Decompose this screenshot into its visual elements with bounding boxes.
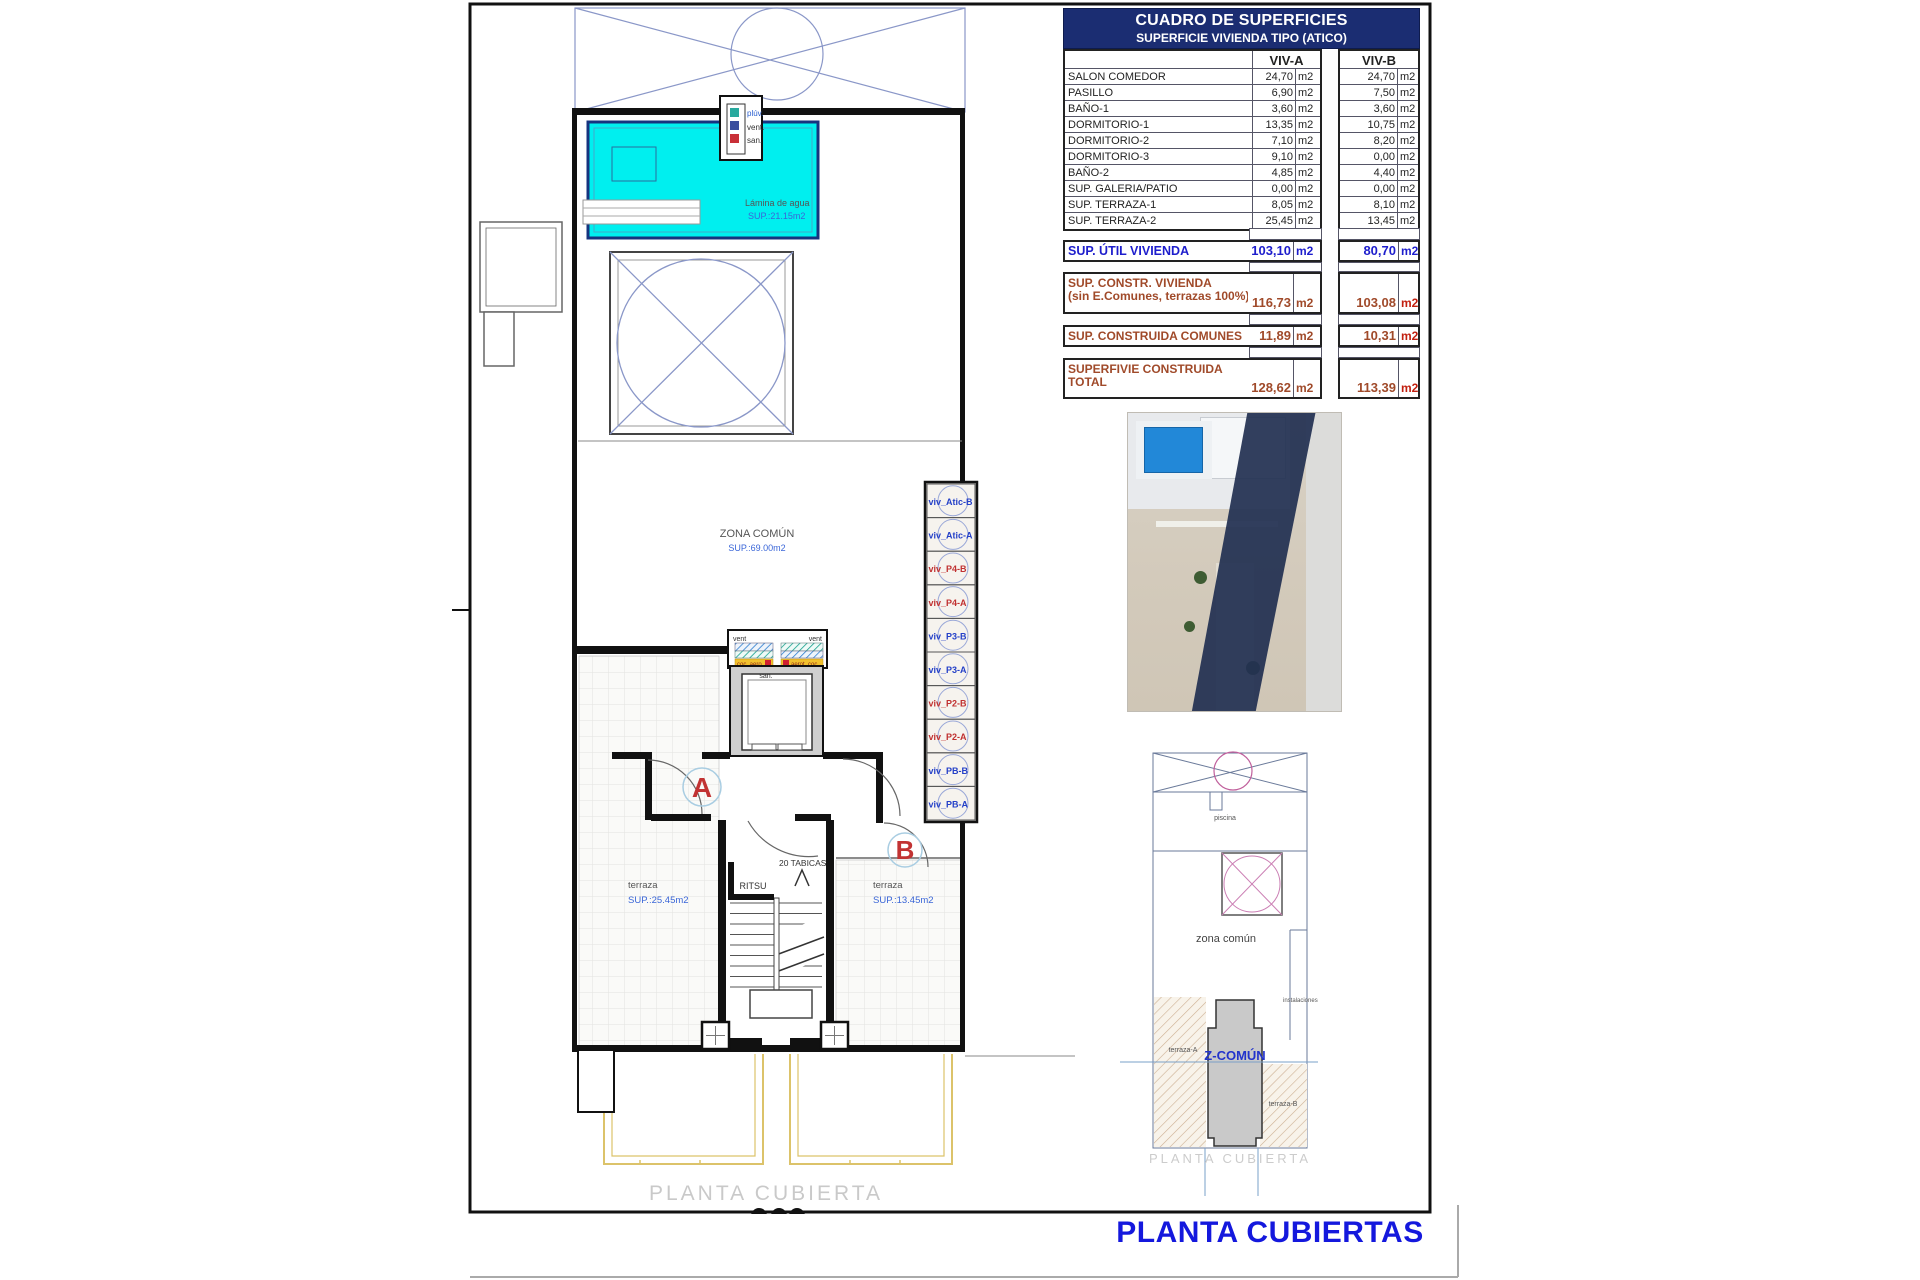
table-row: DORMITORIO-27,10m2: [1065, 133, 1320, 149]
aerial-render-image: [1127, 412, 1342, 712]
table-row-b: 8,20m2: [1340, 133, 1418, 149]
elevator: [730, 666, 823, 756]
table-spacer: [1338, 228, 1420, 240]
riser-label: viv_P4-A: [929, 598, 968, 608]
roof-skylight: [575, 8, 965, 112]
table-spacer: [1249, 347, 1322, 358]
table-row-b: 24,70m2: [1340, 69, 1418, 85]
total-construida-row: SUPERFIVIE CONSTRUIDA TOTAL 128,62 m2: [1063, 358, 1322, 399]
total-comunes-row-b: 10,31 m2: [1338, 325, 1420, 347]
exterior-planters: [480, 222, 562, 366]
col-header-viv-a: VIV-A: [1253, 51, 1320, 69]
columns: [702, 1022, 848, 1049]
table-row-b: 0,00m2: [1340, 149, 1418, 165]
legend-vent: vent.: [747, 123, 764, 132]
pool-area-value: SUP.:21.15m2: [748, 211, 805, 221]
lightwell: [610, 252, 793, 434]
san-label: san.: [759, 673, 772, 680]
riser-label: viv_P2-B: [929, 699, 968, 709]
table-row-b: 7,50m2: [1340, 85, 1418, 101]
svg-text:SUP.:13.45m2: SUP.:13.45m2: [873, 895, 934, 906]
riser-label: viv_PB-A: [929, 799, 969, 809]
exterior-box: [578, 1050, 614, 1112]
riser-shaft-cells: viv_Atic-Bviv_Atic-Aviv_P4-Bviv_P4-Aviv_…: [927, 484, 975, 820]
table-row-b: 3,60m2: [1340, 101, 1418, 117]
table-row-b: 13,45m2: [1340, 213, 1418, 229]
tabicas-label: 20 TABICAS: [779, 858, 827, 868]
table-header: CUADRO DE SUPERFICIES SUPERFICIE VIVIEND…: [1063, 8, 1420, 49]
zona-comun-label: ZONA COMÚN SUP.:69.00m2: [720, 527, 795, 553]
table-spacer: [1338, 314, 1420, 325]
pool-riser-legend: plúv. vent. san.: [720, 96, 764, 160]
table-row: PASILLO6,90m2: [1065, 85, 1320, 101]
table-row: SUP. TERRAZA-225,45m2: [1065, 213, 1320, 229]
table-row-b: 10,75m2: [1340, 117, 1418, 133]
riser-label: viv_P3-B: [929, 631, 968, 641]
site-zona-comun-label: zona común: [1196, 933, 1256, 945]
awning-outlines: [604, 1054, 952, 1165]
svg-text:ZONA COMÚN: ZONA COMÚN: [720, 527, 795, 540]
render-plant: [1194, 571, 1207, 584]
svg-text:terraza: terraza: [873, 880, 903, 891]
table-row: BAÑO-24,85m2: [1065, 165, 1320, 181]
total-util-row: SUP. ÚTIL VIVIENDA 103,10 m2: [1063, 240, 1322, 262]
table-row-b: 0,00m2: [1340, 181, 1418, 197]
total-comunes-row: SUP. CONSTRUIDA COMUNES 11,89 m2: [1063, 325, 1322, 347]
table-viv-b-box: VIV-B 24,70m27,50m23,60m210,75m28,20m20,…: [1338, 49, 1420, 231]
vent-legend-strip: vent vent coc. aero aerot. coc.: [728, 630, 827, 668]
svg-text:A: A: [692, 772, 712, 803]
table-spacer: [1338, 262, 1420, 272]
riser-label: viv_P4-B: [929, 564, 968, 574]
riser-label: viv_P2-A: [929, 732, 968, 742]
san-icon: [730, 134, 739, 143]
table-row: SALON COMEDOR24,70m2: [1065, 69, 1320, 85]
svg-text:B: B: [896, 835, 915, 865]
surface-table: CUADRO DE SUPERFICIES SUPERFICIE VIVIEND…: [1063, 8, 1420, 404]
site-pool-circle: [1214, 752, 1252, 790]
table-viv-a-box: VIV-A SALON COMEDOR24,70m2PASILLO6,90m2B…: [1063, 49, 1322, 231]
table-row: BAÑO-13,60m2: [1065, 101, 1320, 117]
riser-label: viv_Atic-A: [929, 531, 974, 541]
table-title: CUADRO DE SUPERFICIES: [1064, 9, 1419, 30]
pool-steps: [583, 200, 700, 224]
site-core-shaft: [1208, 1000, 1262, 1146]
svg-text:SUP.:25.45m2: SUP.:25.45m2: [628, 895, 689, 906]
sheet-title: PLANTA CUBIERTAS: [1100, 1216, 1440, 1250]
table-spacer: [1338, 347, 1420, 358]
pool: Lámina de agua SUP.:21.15m2: [583, 122, 818, 238]
plan-caption: PLANTA CUBIERTA: [649, 1182, 883, 1205]
table-row: SUP. TERRAZA-18,05m2: [1065, 197, 1320, 213]
riser-label: viv_PB-B: [929, 766, 969, 776]
table-col-header-row-b: VIV-B: [1340, 51, 1418, 69]
total-constr-row: SUP. CONSTR. VIVIENDA (sin E.Comunes, te…: [1063, 272, 1322, 314]
legend-san: san.: [747, 136, 762, 145]
table-row: SUP. GALERIA/PATIO0,00m2: [1065, 181, 1320, 197]
total-constr-row-b: 103,08 m2: [1338, 272, 1420, 314]
table-spacer: [1249, 262, 1322, 272]
table-row-b: 8,10m2: [1340, 197, 1418, 213]
ritsu-label: RITSU: [740, 881, 767, 891]
stair-direction-arrow: [795, 870, 809, 886]
vent-icon: [730, 121, 739, 130]
pool-area-label: Lámina de agua: [745, 198, 810, 208]
table-col-header-row: VIV-A: [1065, 51, 1320, 69]
drawing-sheet: Lámina de agua SUP.:21.15m2 plúv. vent. …: [0, 0, 1920, 1280]
site-piscina-label: piscina: [1214, 815, 1236, 822]
site-instalaciones-label: instalaciones: [1283, 998, 1318, 1004]
site-plan: piscina zona común instalaciones Z-COMÚN…: [1120, 752, 1318, 1196]
table-subtitle: SUPERFICIE VIVIENDA TIPO (ATICO): [1064, 31, 1419, 45]
render-plant: [1184, 621, 1195, 632]
riser-label: viv_P3-A: [929, 665, 968, 675]
stairs: RITSU 20 TABICAS: [718, 820, 834, 1046]
vent-right-label: vent: [809, 636, 822, 643]
riser-label: viv_Atic-B: [929, 497, 974, 507]
table-row: DORMITORIO-39,10m2: [1065, 149, 1320, 165]
site-z-comun-label: Z-COMÚN: [1204, 1048, 1265, 1063]
unit-b-marker: B: [888, 833, 922, 867]
total-util-row-b: 80,70 m2: [1338, 240, 1420, 262]
table-spacer: [1249, 228, 1322, 240]
vent-left-label: vent: [733, 636, 746, 643]
table-row-b: 4,40m2: [1340, 165, 1418, 181]
site-terraza-a-label: terraza-A: [1169, 1047, 1198, 1054]
col-header-viv-b: VIV-B: [1340, 51, 1418, 69]
site-terraza-b-label: terraza-B: [1269, 1101, 1298, 1108]
render-pool: [1144, 427, 1203, 473]
svg-text:terraza: terraza: [628, 880, 658, 891]
legend-pluv: plúv.: [747, 109, 763, 118]
table-spacer: [1249, 314, 1322, 325]
table-row: DORMITORIO-113,35m2: [1065, 117, 1320, 133]
floor-plan-drawing: Lámina de agua SUP.:21.15m2 plúv. vent. …: [0, 0, 1920, 1280]
site-caption: PLANTA CUBIERTA: [1149, 1151, 1311, 1166]
total-construida-row-b: 113,39 m2: [1338, 358, 1420, 399]
pluv-icon: [730, 108, 739, 117]
svg-text:SUP.:69.00m2: SUP.:69.00m2: [728, 543, 785, 553]
site-terraza-a-hatch: [1154, 997, 1206, 1147]
